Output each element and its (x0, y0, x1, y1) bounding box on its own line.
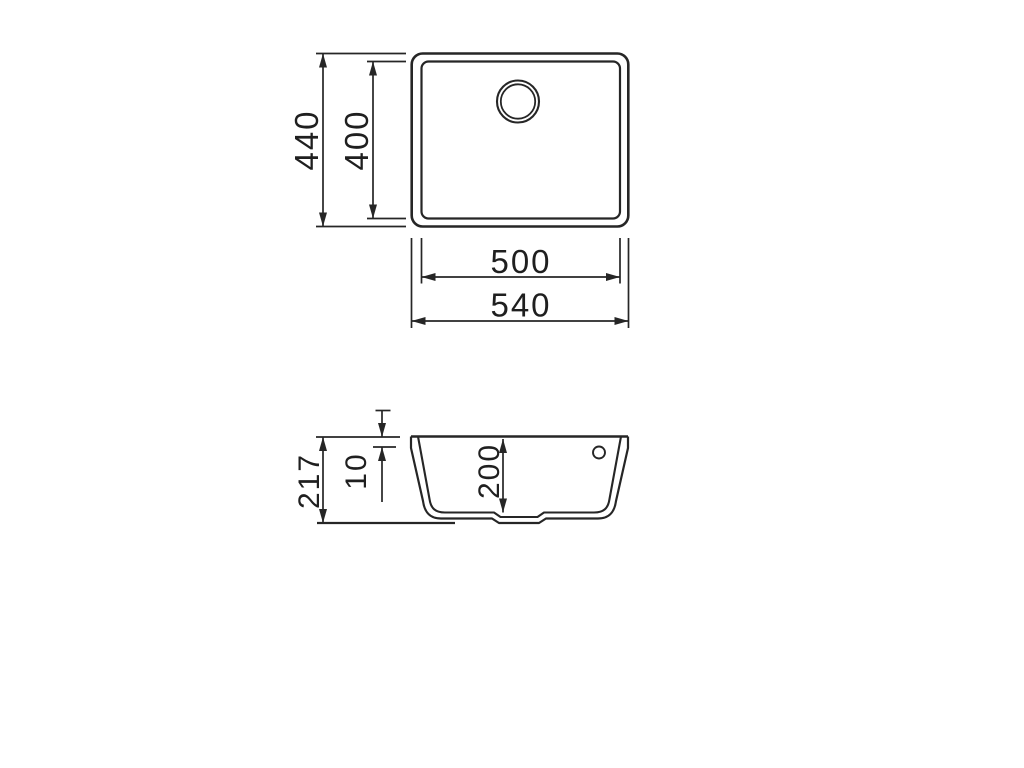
overflow-hole (593, 447, 605, 459)
dimension-label: 500 (490, 243, 551, 280)
dimension-label: 217 (293, 453, 326, 509)
dimension-rim-height: 10 (340, 411, 396, 503)
dimension-label: 440 (288, 109, 325, 170)
dimension-label: 10 (340, 452, 373, 489)
dimension-label: 200 (473, 443, 506, 499)
dimension-inner-width: 500 (422, 238, 621, 284)
sink-outer-outline (412, 54, 629, 227)
dimension-inner-height: 400 (338, 62, 406, 219)
section-outer-profile (411, 437, 628, 524)
section-view: 217 10 200 (293, 411, 628, 524)
drain-circle-outer (497, 81, 539, 123)
dimension-label: 540 (490, 287, 551, 324)
dimension-label: 400 (338, 109, 375, 170)
section-inner-profile (418, 437, 621, 518)
sink-technical-drawing: 440 400 500 540 (0, 0, 1024, 768)
drawing-canvas: 440 400 500 540 (0, 0, 1024, 768)
drain-circle-inner (501, 84, 535, 118)
dimension-bowl-depth: 200 (473, 439, 506, 513)
top-view: 440 400 500 540 (288, 54, 629, 329)
